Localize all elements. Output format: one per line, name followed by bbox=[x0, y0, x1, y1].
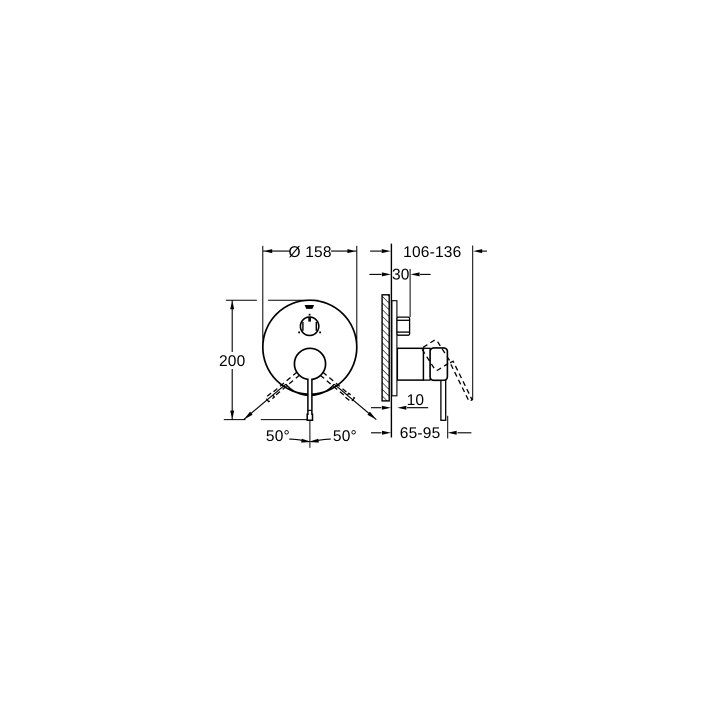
svg-text:106-136: 106-136 bbox=[403, 244, 461, 261]
svg-text:200: 200 bbox=[219, 353, 246, 370]
svg-text:10: 10 bbox=[407, 392, 425, 409]
svg-text:50°: 50° bbox=[266, 428, 290, 445]
svg-text:Ø 158: Ø 158 bbox=[288, 244, 331, 261]
svg-text:50°: 50° bbox=[333, 428, 357, 445]
svg-text:30: 30 bbox=[392, 266, 410, 283]
svg-text:65-95: 65-95 bbox=[400, 425, 441, 442]
